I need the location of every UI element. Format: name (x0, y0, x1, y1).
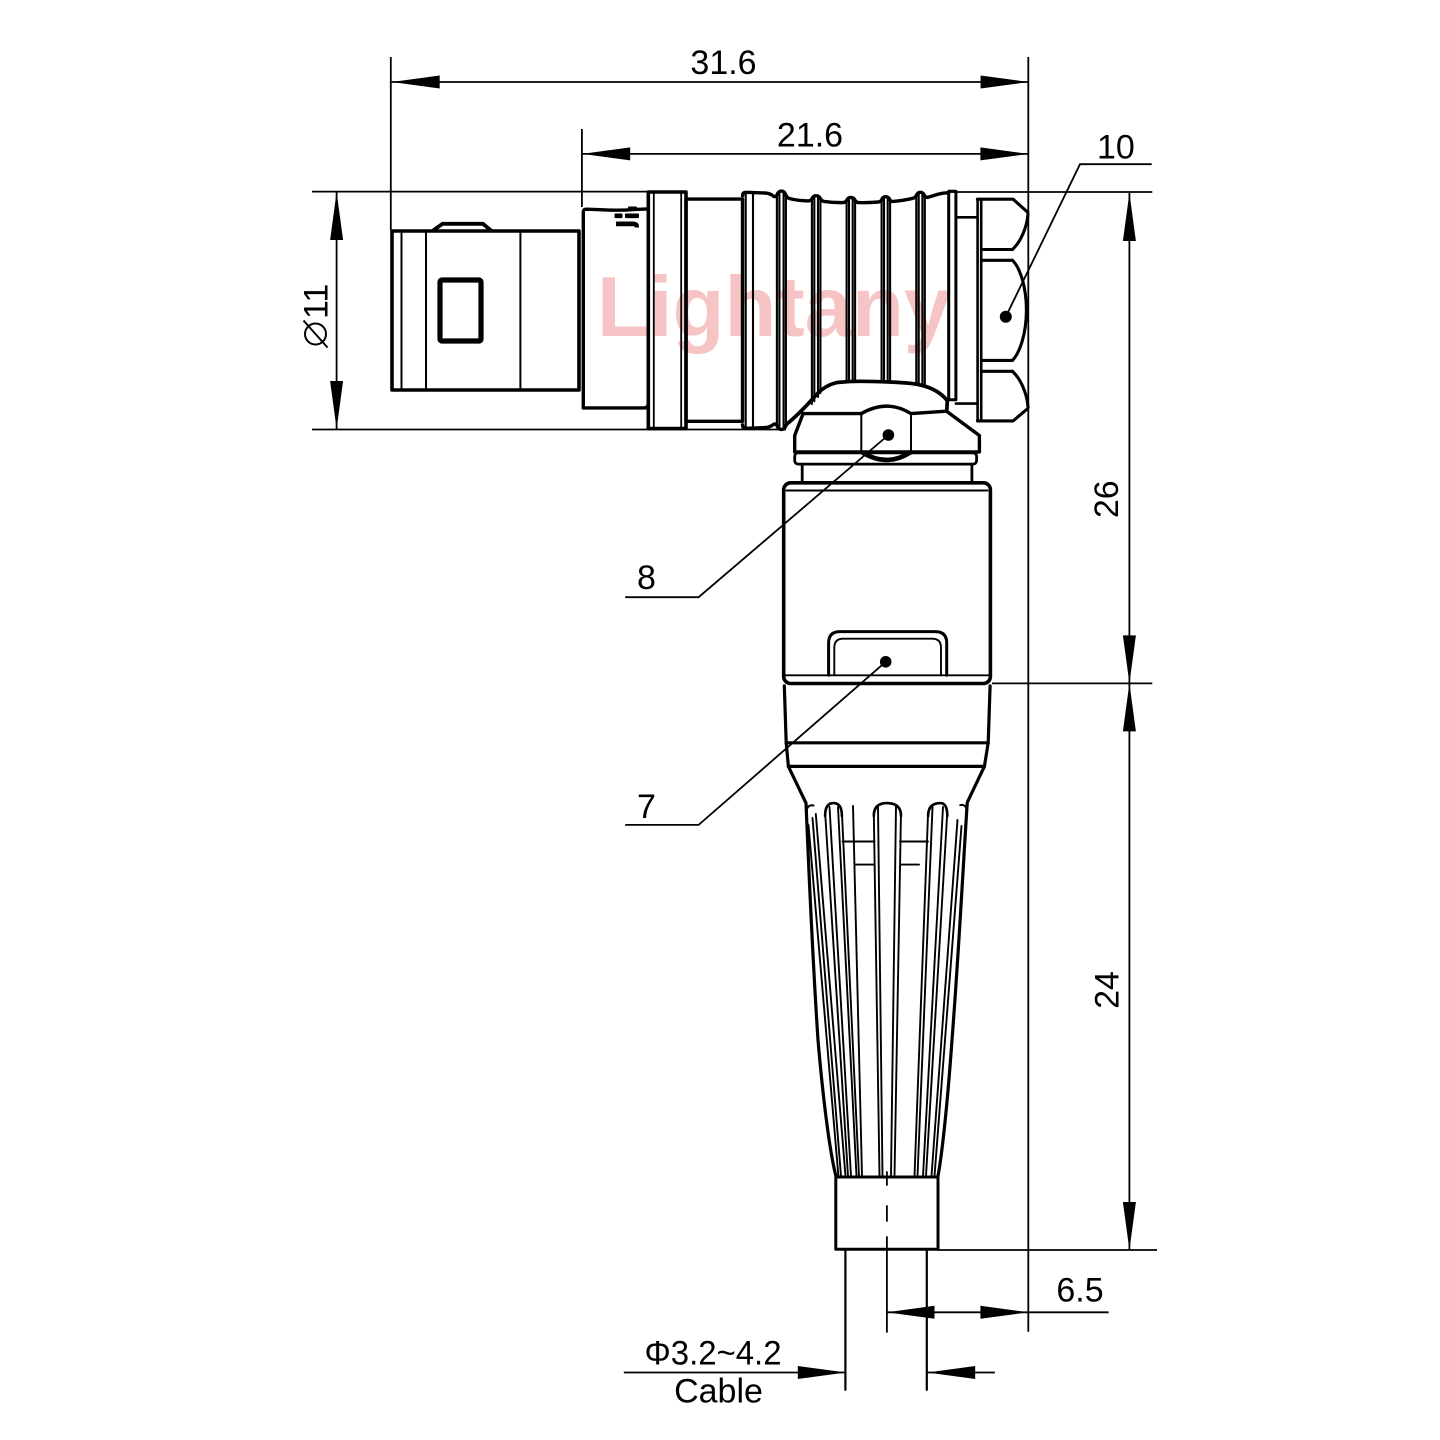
svg-text:10: 10 (1097, 129, 1135, 167)
svg-text:31.6: 31.6 (690, 44, 756, 82)
svg-text:11: 11 (298, 284, 336, 319)
svg-text:8: 8 (637, 559, 656, 597)
svg-text:Cable: Cable (674, 1373, 763, 1411)
svg-text:Lightany: Lightany (597, 260, 951, 355)
svg-text:6.5: 6.5 (1056, 1272, 1103, 1310)
svg-text:26: 26 (1088, 480, 1126, 518)
svg-text:Φ3.2~4.2: Φ3.2~4.2 (645, 1335, 782, 1373)
svg-text:24: 24 (1089, 971, 1127, 1009)
svg-text:21.6: 21.6 (777, 117, 843, 155)
svg-text:7: 7 (637, 788, 656, 826)
